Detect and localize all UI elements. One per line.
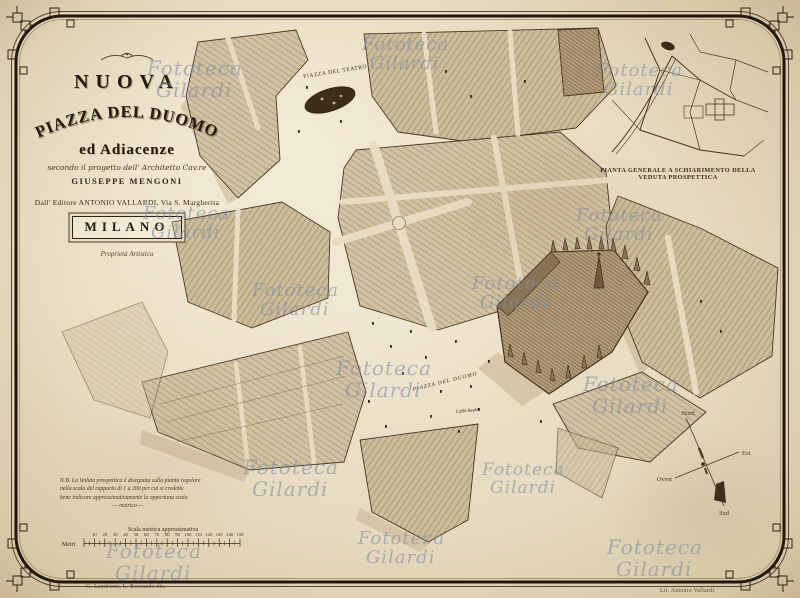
svg-text:80: 80 <box>165 532 170 537</box>
inset-caption: PIANTA GENERALE A SCHIARIMENTO DELLA VED… <box>590 167 766 181</box>
svg-text:120: 120 <box>205 532 213 537</box>
svg-text:40: 40 <box>123 532 128 537</box>
title-flourish <box>99 50 155 64</box>
svg-text:20: 20 <box>103 532 108 537</box>
note-line: bene indicare approssimativamente la opp… <box>60 494 196 502</box>
galleria-octagon <box>393 217 406 230</box>
compass-east: Est <box>742 450 751 457</box>
svg-text:140: 140 <box>226 532 234 537</box>
compass-south: Sud <box>719 510 730 517</box>
inset-plan <box>612 34 768 156</box>
antique-map-page: { "title_block": { "title_top": "NUOVA",… <box>0 0 800 598</box>
scale-bar: Scala metrica approssimativa Metri 10203… <box>62 527 244 548</box>
svg-text:90: 90 <box>175 532 180 537</box>
block-left-edge <box>62 302 168 418</box>
credit-lithographer: Lit. Antonio Vallardi <box>660 588 714 594</box>
svg-text:60: 60 <box>144 532 149 537</box>
title-project-line: secondo il progetto dell' Architetto Cav… <box>24 163 230 172</box>
title-architect: GIUSEPPE MENGONI <box>24 176 230 186</box>
title-city-box: MILANO <box>72 216 183 239</box>
svg-text:150: 150 <box>237 532 245 537</box>
scale-unit: Metri <box>62 542 76 548</box>
credit-draughtsmen: G. Landriani, L. Boccardo dis. <box>86 584 166 590</box>
title-arc: PIAZZA DEL DUOMO PIAZZA DEL DUOMO <box>24 90 230 144</box>
title-block: NUOVA PIAZZA DEL DUOMO PIAZZA DEL DUOMO … <box>24 50 230 258</box>
note-line: N.B. La Veduta prospettica è disegnata s… <box>60 477 196 485</box>
svg-text:30: 30 <box>113 532 118 537</box>
svg-text:10: 10 <box>92 532 97 537</box>
compass-west: Ovest <box>657 476 672 483</box>
teatro-garden-oval <box>302 82 358 119</box>
title-rights: Proprietà Artistica <box>24 250 230 258</box>
title-subtitle: ed Adiacenze <box>24 142 230 159</box>
map-note: N.B. La Veduta prospettica è disegnata s… <box>60 477 196 511</box>
compass-north: Nord <box>681 410 695 417</box>
svg-text:70: 70 <box>155 532 160 537</box>
title-publisher: Dall' Editore ANTONIO VALLARDI, Via S. M… <box>24 198 230 207</box>
svg-text:50: 50 <box>134 532 139 537</box>
scale-ticks: 102030405060708090100110120130140150 <box>84 532 244 547</box>
svg-text:100: 100 <box>185 532 193 537</box>
note-line: nella scala del rapporto di 1 a 200 per … <box>60 485 196 493</box>
note-line: — metrica — <box>60 502 196 510</box>
svg-text:130: 130 <box>216 532 224 537</box>
compass-needle-feather <box>714 481 726 503</box>
tower-top-center <box>558 28 604 96</box>
svg-text:110: 110 <box>195 532 202 537</box>
